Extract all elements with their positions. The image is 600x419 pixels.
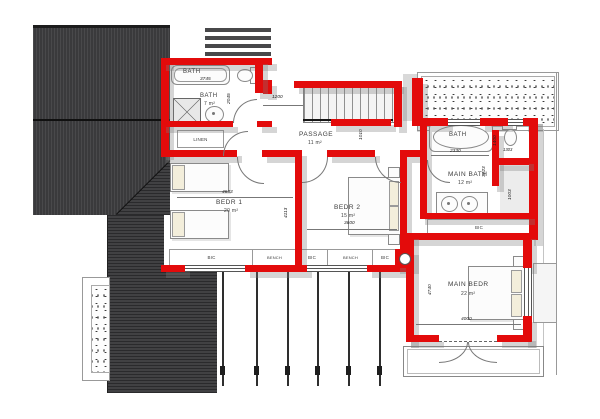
post-base — [377, 366, 382, 375]
roof-lower-right — [163, 272, 217, 393]
mainbath-window-1 — [448, 119, 480, 126]
post-base — [285, 366, 290, 375]
bic-label: BIC — [207, 255, 215, 260]
window-sill-box — [533, 263, 557, 323]
wall-bedr-top-c — [327, 150, 375, 157]
bench-label: BENCH — [343, 255, 358, 260]
wall-stub-left-of-stairs — [263, 80, 272, 94]
louvre-bar — [205, 52, 271, 56]
patio-concrete-left — [91, 285, 110, 373]
mainbath-window-2 — [508, 119, 523, 126]
post-base — [220, 366, 225, 375]
mainbedr-width-dim: 4000 — [461, 317, 472, 322]
terrace-wall-stub — [412, 78, 423, 120]
bedr2-dim-line — [307, 229, 397, 230]
wall-bedr-top-d — [400, 150, 420, 157]
bedr1-door-arc — [237, 157, 264, 184]
roof-ridge-line — [33, 119, 170, 121]
toilet-icon — [504, 129, 517, 146]
mainbedr-dim-line — [416, 324, 521, 325]
bedside-table-icon — [388, 234, 400, 245]
post-base — [315, 366, 320, 375]
toilet-icon — [237, 69, 253, 82]
wall-right-outer — [529, 118, 538, 240]
mainbath-label: MAIN BATH — [448, 171, 487, 178]
bedr1-label: BEDR 1 — [216, 199, 242, 206]
bedr2-width-dim: 3600 — [344, 221, 355, 226]
bedr2-label: BEDR 2 — [334, 204, 360, 211]
bench-cell-2: BENCH — [327, 249, 374, 266]
wall-mainbedr-bottom-a — [406, 335, 439, 342]
wall-bedr-bottom-a — [161, 265, 185, 272]
mainbedr-area: 22 m² — [461, 291, 475, 297]
wall-bath-left — [161, 58, 169, 154]
pillow-icon — [389, 181, 399, 206]
wall-bedr-top-b — [262, 150, 302, 157]
bedr1-area: 20 m² — [224, 208, 238, 214]
pillow-icon — [511, 294, 522, 317]
bedr1-width-dim: 4633 — [222, 190, 233, 195]
mainbath-door-arc — [427, 160, 450, 183]
bath2-area: 7 m² — [204, 101, 215, 107]
bic-label: BIC — [475, 225, 483, 230]
main-tub-label: BATH — [449, 132, 467, 138]
stair-wall-bottom — [331, 119, 391, 126]
staircase — [303, 86, 395, 123]
terrace-edge-line-right — [556, 72, 557, 375]
passage-dim-left: 1200 — [272, 95, 283, 100]
basin-dot — [447, 202, 450, 205]
column-circle — [399, 253, 411, 265]
main-tub-dim: 2330 — [450, 149, 461, 154]
main-tub-dim-line — [431, 155, 489, 156]
linen-door-arc — [223, 131, 248, 156]
bench-cell-1: BENCH — [252, 249, 297, 266]
bic-label: BIC — [381, 255, 389, 260]
wall-mainbath-top-b — [480, 118, 508, 126]
wall-mainbath-top-a — [412, 118, 448, 126]
passage-area: 11 m² — [308, 140, 322, 146]
basin-dot — [212, 112, 215, 115]
basin-dot — [467, 202, 470, 205]
closet-dim: 1003 — [508, 189, 513, 200]
wall-stub-right-of-stairs — [394, 81, 402, 127]
pillow-icon — [511, 270, 522, 293]
stair-wall-top — [294, 81, 399, 88]
wc-width-dim: 1303 — [503, 147, 512, 152]
bath1-width-dim: 3745 — [200, 77, 211, 82]
post-base — [254, 366, 259, 375]
stair-dim: 1010 — [359, 129, 364, 140]
pillow-icon — [172, 165, 185, 190]
wall-mainbath-bottom — [420, 213, 530, 219]
wall-mainbath-left — [420, 126, 427, 214]
wall-bath-mid-a — [161, 121, 233, 127]
wall-bedr-bottom-b — [245, 265, 307, 272]
wall-mainbedr-top — [406, 233, 531, 240]
wall-mainbedr-bottom-b — [497, 335, 531, 342]
floor-plan: BATH 3745 2045 BATH 7 m² LINEN 1200 PASS… — [0, 0, 600, 419]
passage-label: PASSAGE — [299, 131, 333, 138]
pillow-icon — [172, 212, 185, 237]
bath2-door-arc — [233, 99, 257, 123]
mainbath-area: 12 m² — [458, 180, 472, 186]
bedr1-dim-line — [177, 197, 293, 198]
wall-bath-right — [255, 58, 263, 93]
bath1-label: BATH — [183, 69, 201, 75]
bic-label: BIC — [308, 255, 316, 260]
bedr1-window — [185, 265, 245, 272]
bic-cell-1: BIC — [169, 249, 254, 266]
bedr2-window — [307, 265, 367, 272]
bath1-height-dim: 2045 — [227, 93, 232, 104]
mainbedr-label: MAIN BEDR — [448, 281, 489, 288]
mainbedr-window — [524, 268, 532, 316]
linen-label: LINEN — [193, 137, 207, 142]
bench-label: BENCH — [267, 255, 282, 260]
wc-height-dim: 1400 — [493, 135, 498, 146]
wall-wc-bottom — [495, 158, 529, 165]
bath2-label: BATH — [200, 93, 218, 99]
bedr1-height-dim: 4113 — [284, 208, 289, 218]
passage-dim-line — [263, 105, 303, 106]
wall-bedr-divider — [295, 157, 302, 265]
mainbedr-height-dim: 4740 — [428, 284, 433, 295]
wall-mainbedr-right-up — [523, 240, 532, 268]
wall-bath-mid-b — [257, 121, 272, 127]
pillow-icon — [389, 206, 399, 231]
louvre-bar — [205, 28, 271, 32]
bedr2-area: 15 m² — [341, 213, 355, 219]
louvre-bar — [205, 44, 271, 48]
bedr2-door-arc — [302, 157, 328, 183]
linen-closet: LINEN — [177, 130, 224, 148]
roof-lower-left — [107, 215, 164, 393]
post-base — [346, 366, 351, 375]
wall-mainbedr-left — [406, 233, 414, 342]
louvre-bar — [205, 36, 271, 40]
